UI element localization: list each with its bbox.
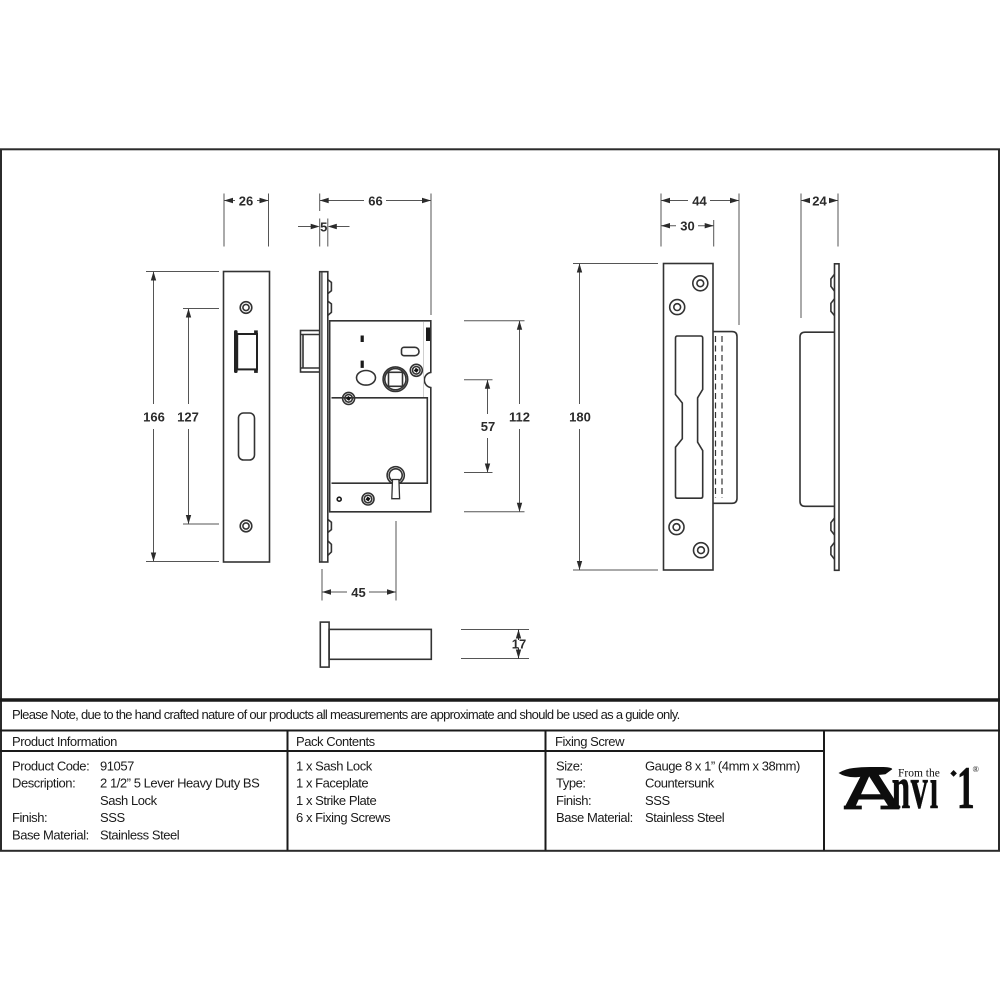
- svg-text:30: 30: [680, 219, 694, 234]
- svg-text:®: ®: [973, 764, 980, 774]
- svg-text:Fixing Screw: Fixing Screw: [555, 734, 625, 749]
- svg-text:1 x Sash Lock: 1 x Sash Lock: [296, 759, 373, 774]
- svg-text:6 x Fixing Screws: 6 x Fixing Screws: [296, 810, 391, 825]
- svg-text:Finish:: Finish:: [556, 793, 591, 808]
- svg-text:127: 127: [177, 410, 199, 425]
- svg-text:57: 57: [481, 419, 495, 434]
- svg-text:Base Material:: Base Material:: [556, 810, 633, 825]
- svg-text:Product Information: Product Information: [12, 734, 117, 749]
- svg-text:26: 26: [239, 193, 253, 208]
- svg-text:2 1/2” 5 Lever Heavy Duty BS: 2 1/2” 5 Lever Heavy Duty BS: [100, 776, 260, 791]
- svg-text:v: v: [911, 755, 928, 821]
- svg-text:180: 180: [569, 410, 591, 425]
- svg-text:ı: ı: [930, 755, 938, 821]
- svg-text:Stainless Steel: Stainless Steel: [100, 827, 180, 842]
- svg-text:Finish:: Finish:: [12, 810, 47, 825]
- svg-text:45: 45: [351, 585, 365, 600]
- svg-text:SSS: SSS: [645, 793, 670, 808]
- svg-text:Sash Lock: Sash Lock: [100, 793, 158, 808]
- svg-text:Please Note, due to the hand c: Please Note, due to the hand crafted nat…: [12, 707, 680, 722]
- svg-text:5: 5: [320, 219, 327, 234]
- svg-text:66: 66: [368, 193, 382, 208]
- svg-text:Base Material:: Base Material:: [12, 827, 89, 842]
- svg-text:Gauge 8 x 1” (4mm x 38mm): Gauge 8 x 1” (4mm x 38mm): [645, 759, 800, 774]
- svg-text:Stainless Steel: Stainless Steel: [645, 810, 725, 825]
- svg-text:Type:: Type:: [556, 776, 586, 791]
- svg-text:Pack Contents: Pack Contents: [296, 734, 376, 749]
- svg-text:112: 112: [509, 410, 530, 425]
- svg-text:166: 166: [143, 410, 165, 425]
- svg-text:44: 44: [692, 193, 707, 208]
- svg-text:91057: 91057: [100, 759, 134, 774]
- svg-text:Countersunk: Countersunk: [645, 776, 715, 791]
- svg-text:24: 24: [812, 193, 827, 208]
- svg-text:17: 17: [512, 637, 526, 652]
- svg-text:SSS: SSS: [100, 810, 125, 825]
- svg-text:Product Code:: Product Code:: [12, 759, 89, 774]
- svg-text:n: n: [892, 755, 911, 821]
- svg-text:Description:: Description:: [12, 776, 75, 791]
- svg-text:1 x Strike Plate: 1 x Strike Plate: [296, 793, 376, 808]
- svg-text:1 x Faceplate: 1 x Faceplate: [296, 776, 368, 791]
- svg-text:Size:: Size:: [556, 759, 583, 774]
